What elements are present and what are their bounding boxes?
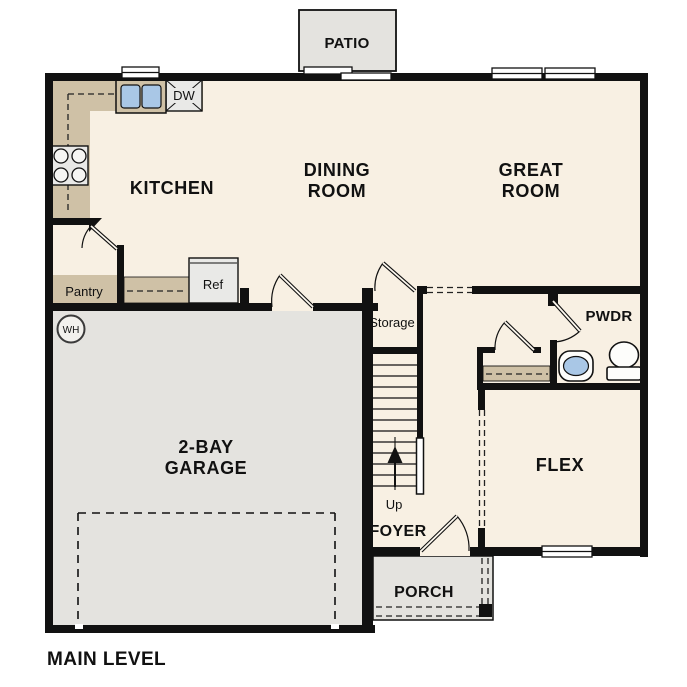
front-door-opening: [420, 547, 470, 556]
pantry-label: Pantry: [65, 284, 103, 299]
dining-room-label: ROOM: [308, 181, 366, 201]
stove: [52, 146, 88, 185]
kitchen-label: KITCHEN: [130, 178, 214, 198]
kitchen-sink: [116, 80, 166, 113]
foyer-label: FOYER: [369, 523, 426, 540]
stair-handrail: [417, 438, 424, 494]
great-room-window: [492, 68, 542, 79]
garage-label: GARAGE: [165, 458, 248, 478]
porch-post: [479, 604, 492, 617]
up-label: Up: [386, 497, 403, 512]
great-room-window: [545, 68, 595, 79]
porch-label: PORCH: [394, 584, 454, 601]
great-room-label: ROOM: [502, 181, 560, 201]
dining-room-label: DINING: [304, 160, 371, 180]
garage-label: 2-BAY: [178, 437, 233, 457]
floor-plan: PATIO KITCHEN DINING ROOM GREAT ROOM 2-B…: [0, 0, 687, 687]
cased-opening-dashed: [427, 285, 472, 295]
powder-sink: [559, 351, 593, 381]
toilet: [607, 342, 641, 380]
flex-label: FLEX: [536, 455, 584, 475]
ref-label: Ref: [203, 277, 224, 292]
patio-label: PATIO: [324, 35, 369, 52]
kitchen-window: [122, 67, 159, 78]
garage-door-notch: [331, 624, 339, 629]
wh-label: WH: [63, 325, 80, 336]
garage-door-notch: [75, 624, 83, 629]
storage-label: Storage: [369, 315, 415, 330]
pwdr-label: PWDR: [585, 308, 632, 325]
flex-window: [542, 546, 592, 557]
great-room-label: GREAT: [499, 160, 564, 180]
dw-label: DW: [173, 88, 195, 103]
plan-title: MAIN LEVEL: [47, 649, 166, 670]
